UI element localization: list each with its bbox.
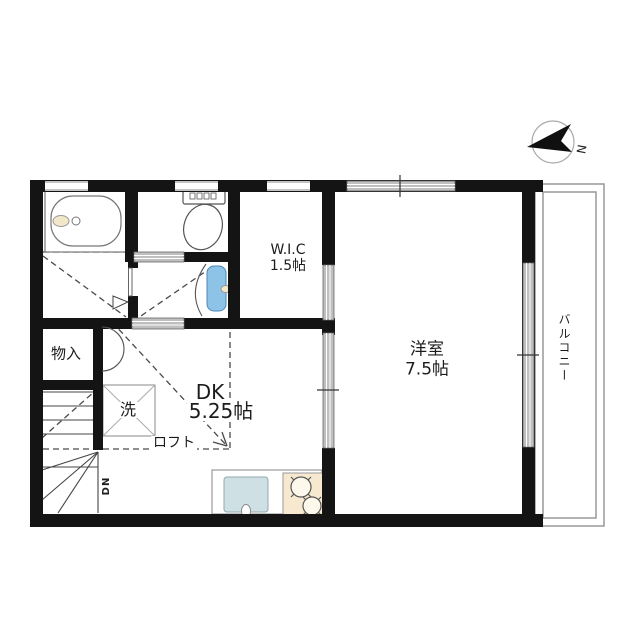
sliding-door-icon	[134, 252, 184, 262]
top-wall-windows	[45, 181, 310, 191]
loft-line	[42, 391, 95, 438]
wall-dk-west-bottom	[322, 448, 335, 514]
window-icon	[45, 181, 88, 191]
room-size-western: 7.5帖	[405, 362, 449, 379]
wall-left	[30, 180, 43, 527]
floorplan-drawing: N	[0, 0, 640, 640]
room-size-wic: 1.5帖	[270, 259, 306, 273]
wall-bath-toilet	[125, 188, 138, 252]
wall-storage-bottom	[30, 380, 103, 390]
stairs-direction-label: DN	[102, 477, 112, 496]
wall-dk-west-top	[322, 180, 335, 265]
door-swing-icon	[102, 327, 124, 349]
room-label-loft: ロフト	[151, 436, 197, 450]
room-label-balcony: バルコニー	[558, 313, 570, 383]
toilet-icon	[178, 191, 228, 255]
floorplan-canvas: N W.I.C 1.5帖 洋室 7.5帖 DK 5.25帖 物入 洗 ロフト バ…	[0, 0, 640, 640]
room-label-washer: 洗	[118, 402, 138, 418]
kitchen-sink-icon	[224, 477, 268, 518]
room-label-western: 洋室	[410, 342, 444, 359]
loft-line	[138, 267, 212, 318]
window-icon	[267, 181, 310, 191]
sliding-window-icon	[347, 181, 455, 191]
stove-burner-icon	[283, 473, 323, 517]
compass-north-icon: N	[527, 121, 589, 163]
doors	[102, 264, 206, 371]
wall-bottom	[30, 514, 543, 527]
door-swing-icon	[102, 349, 124, 371]
wall-dk-west-mid	[322, 318, 335, 335]
room-label-storage: 物入	[51, 347, 81, 362]
wall-wic-left	[228, 188, 240, 328]
room-size-dk: 5.25帖	[187, 401, 256, 421]
door-swing-triangle-icon	[113, 296, 128, 309]
door-panel	[129, 268, 133, 296]
sliding-door-icon	[323, 265, 334, 320]
compass-north-label: N	[573, 143, 588, 154]
kitchen-counter	[212, 470, 323, 518]
room-label-wic: W.I.C	[270, 243, 305, 257]
door-swing-icon	[195, 264, 206, 316]
stairs-down-icon	[42, 392, 98, 513]
window-icon	[175, 181, 218, 191]
sliding-door-icon	[132, 318, 184, 329]
washbasin-icon	[207, 266, 231, 311]
bathtub-icon	[45, 190, 127, 252]
